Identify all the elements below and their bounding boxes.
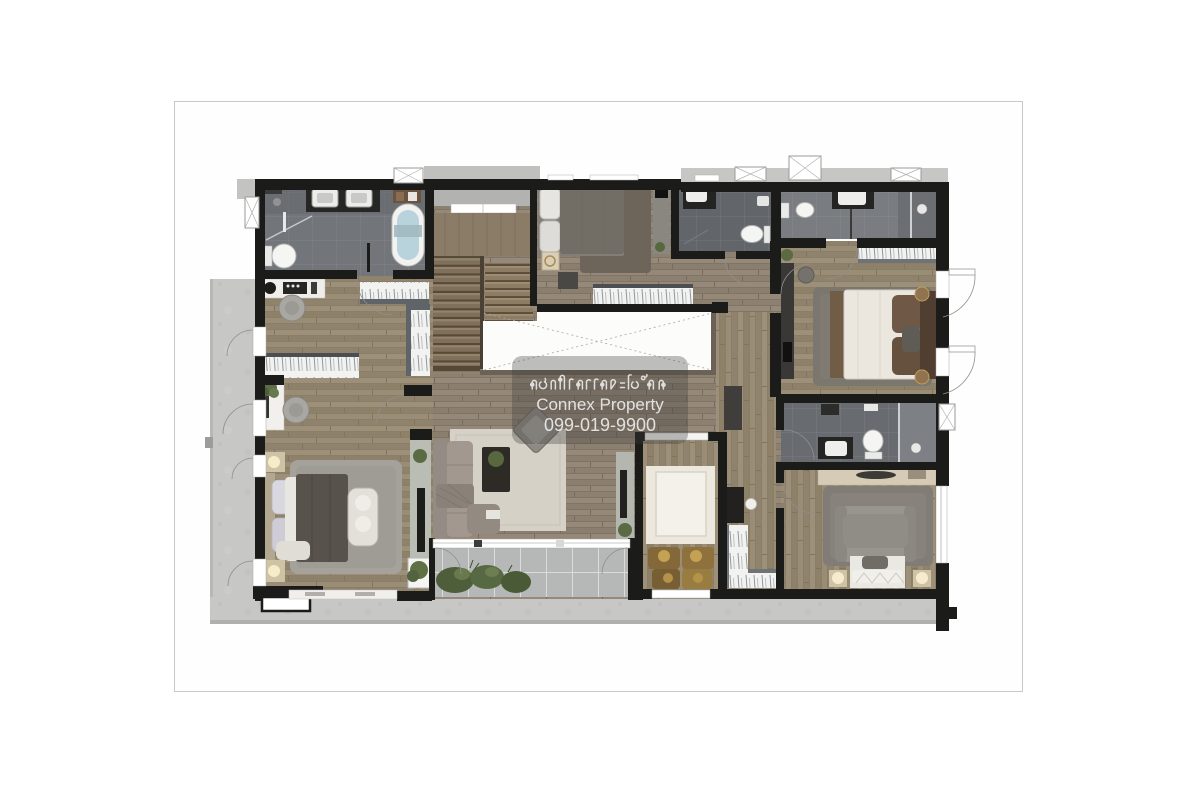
svg-text:099-019-9900: 099-019-9900 [544, 415, 656, 435]
svg-text:Connex Property: Connex Property [536, 395, 664, 414]
